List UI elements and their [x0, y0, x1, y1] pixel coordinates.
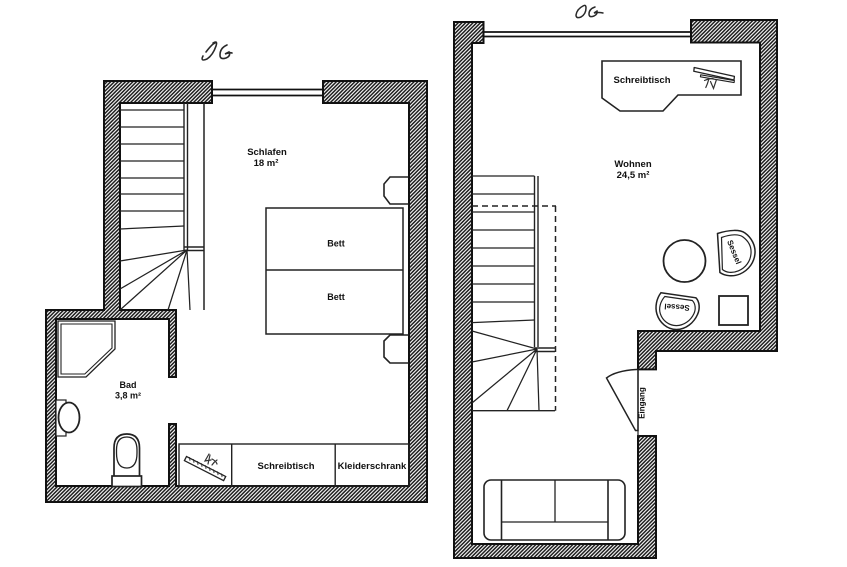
svg-text:Bett: Bett — [327, 292, 345, 302]
svg-text:Eingang: Eingang — [638, 387, 647, 419]
svg-text:Bett: Bett — [327, 239, 345, 249]
svg-text:Wohnen: Wohnen — [614, 159, 651, 170]
svg-text:Kleiderschrank: Kleiderschrank — [338, 461, 407, 472]
svg-text:18 m²: 18 m² — [254, 158, 279, 169]
svg-text:Schreibtisch: Schreibtisch — [257, 461, 314, 472]
svg-text:Schreibtisch: Schreibtisch — [613, 75, 670, 86]
svg-text:24,5 m²: 24,5 m² — [617, 170, 650, 181]
svg-text:Bad: Bad — [119, 380, 136, 390]
svg-text:Sessel: Sessel — [664, 302, 690, 313]
svg-text:3,8 m²: 3,8 m² — [115, 391, 141, 401]
svg-text:Schlafen: Schlafen — [247, 147, 287, 158]
